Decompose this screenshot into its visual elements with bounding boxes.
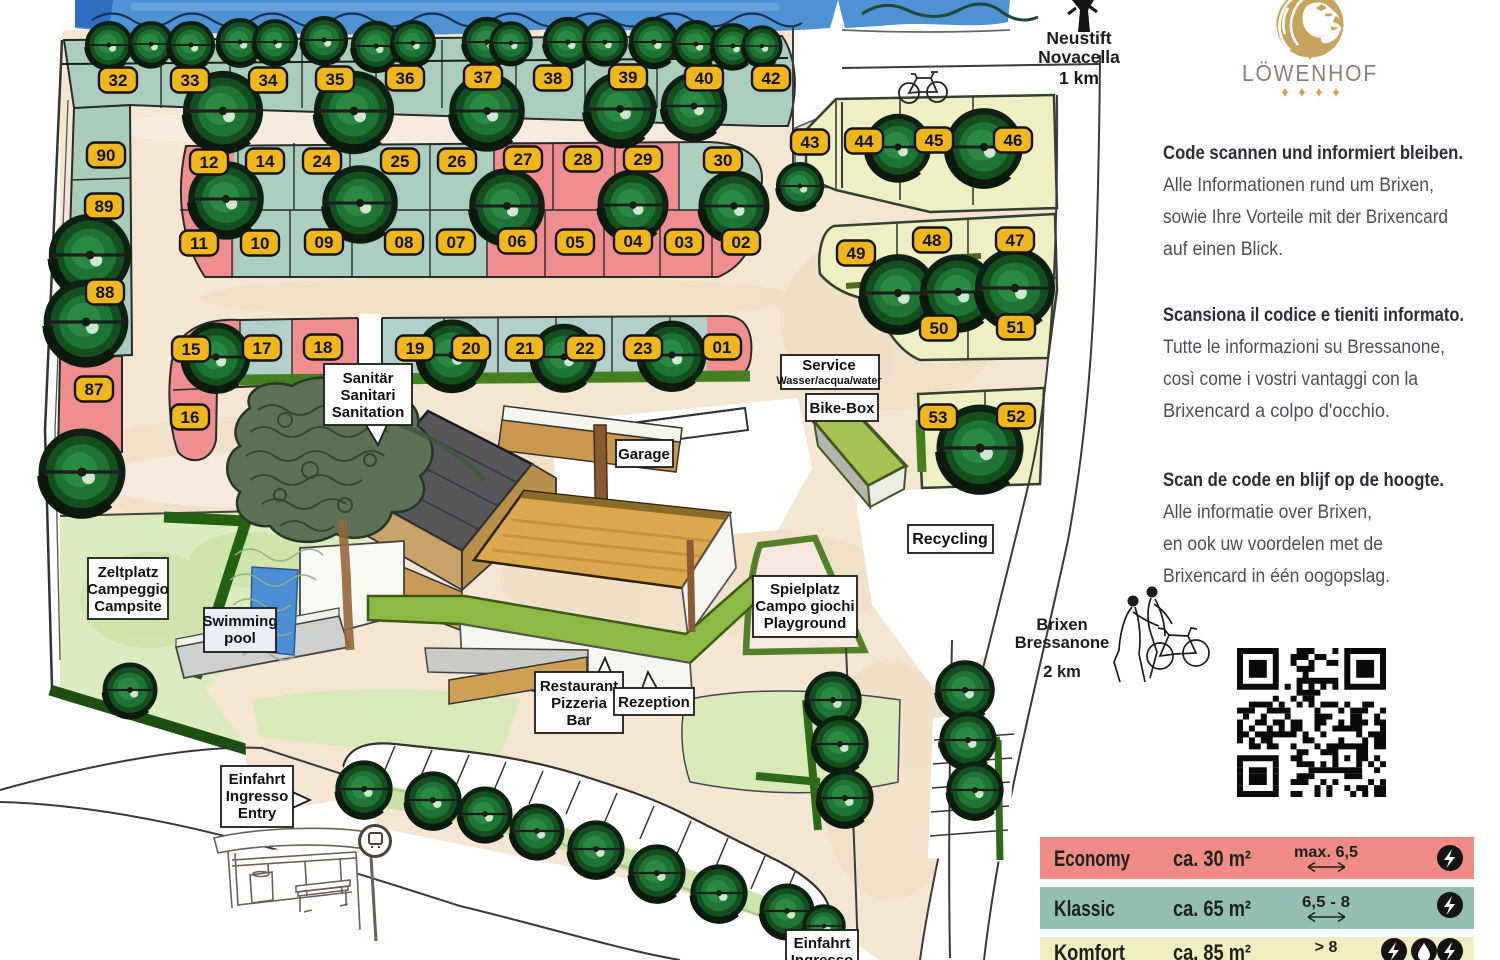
svg-text:21: 21 xyxy=(516,339,535,358)
svg-text:47: 47 xyxy=(1006,231,1025,250)
svg-text:53: 53 xyxy=(929,408,948,427)
svg-text:ca. 30 m²: ca. 30 m² xyxy=(1173,846,1251,871)
svg-text:49: 49 xyxy=(847,244,866,263)
svg-text:51: 51 xyxy=(1007,318,1026,337)
svg-text:46: 46 xyxy=(1004,131,1023,150)
svg-text:LÖWENHOF: LÖWENHOF xyxy=(1242,60,1378,86)
svg-text:87: 87 xyxy=(85,380,104,399)
svg-text:15: 15 xyxy=(182,340,201,359)
svg-text:01: 01 xyxy=(713,338,732,357)
svg-text:35: 35 xyxy=(326,70,345,89)
svg-text:SpielplatzCampo giochiPlaygrou: SpielplatzCampo giochiPlayground xyxy=(755,581,854,632)
svg-text:Komfort: Komfort xyxy=(1054,940,1126,960)
svg-text:18: 18 xyxy=(314,338,333,357)
svg-text:04: 04 xyxy=(624,232,643,251)
svg-text:22: 22 xyxy=(576,339,595,358)
svg-text:09: 09 xyxy=(315,233,334,252)
svg-text:11: 11 xyxy=(190,234,208,253)
svg-text:39: 39 xyxy=(619,68,638,87)
svg-text:34: 34 xyxy=(259,71,278,90)
svg-text:42: 42 xyxy=(762,69,781,88)
svg-text:07: 07 xyxy=(447,233,466,252)
svg-text:50: 50 xyxy=(930,319,949,338)
svg-text:40: 40 xyxy=(695,69,714,88)
svg-text:08: 08 xyxy=(395,233,414,252)
svg-text:16: 16 xyxy=(181,408,200,427)
svg-text:24: 24 xyxy=(313,152,332,171)
svg-text:03: 03 xyxy=(675,233,694,252)
svg-text:Economy: Economy xyxy=(1054,846,1131,871)
svg-text:SanitärSanitariSanitation: SanitärSanitariSanitation xyxy=(332,370,405,421)
svg-text:6,5 - 8: 6,5 - 8 xyxy=(1302,894,1350,911)
svg-text:14: 14 xyxy=(256,152,275,171)
svg-text:38: 38 xyxy=(544,69,563,88)
svg-text:30: 30 xyxy=(714,151,733,170)
svg-text:36: 36 xyxy=(396,69,415,88)
svg-text:Klassic: Klassic xyxy=(1054,896,1115,921)
svg-text:max. 6,5: max. 6,5 xyxy=(1294,844,1358,861)
svg-text:ZeltplatzCampeggioCampsite: ZeltplatzCampeggioCampsite xyxy=(87,564,169,615)
svg-text:Recycling: Recycling xyxy=(912,531,988,548)
svg-text:06: 06 xyxy=(508,232,527,251)
svg-text:27: 27 xyxy=(514,150,533,169)
svg-text:ca. 85 m²: ca. 85 m² xyxy=(1173,940,1251,960)
svg-text:05: 05 xyxy=(566,233,585,252)
svg-text:20: 20 xyxy=(462,339,481,358)
svg-text:Rezeption: Rezeption xyxy=(618,694,690,711)
svg-text:88: 88 xyxy=(96,283,115,302)
svg-text:29: 29 xyxy=(634,150,653,169)
svg-text:26: 26 xyxy=(448,152,467,171)
svg-text:Wasser/acqua/water: Wasser/acqua/water xyxy=(776,375,882,387)
svg-text:10: 10 xyxy=(251,234,270,253)
svg-text:52: 52 xyxy=(1007,407,1026,426)
svg-text:Bike-Box: Bike-Box xyxy=(809,400,875,417)
svg-text:44: 44 xyxy=(855,132,874,151)
svg-text:43: 43 xyxy=(801,133,820,152)
svg-text:33: 33 xyxy=(181,71,200,90)
svg-text:90: 90 xyxy=(97,146,116,165)
svg-text:19: 19 xyxy=(406,339,425,358)
svg-text:ca. 65 m²: ca. 65 m² xyxy=(1173,896,1251,921)
svg-text:EinfahrtIngresso: EinfahrtIngresso xyxy=(791,935,854,960)
svg-text:28: 28 xyxy=(574,150,593,169)
svg-text:37: 37 xyxy=(474,68,493,87)
svg-text:48: 48 xyxy=(923,231,942,250)
svg-text:Service: Service xyxy=(802,357,855,374)
svg-text:17: 17 xyxy=(253,339,272,358)
svg-text:> 8: > 8 xyxy=(1315,939,1338,956)
svg-text:12: 12 xyxy=(200,153,219,172)
svg-text:45: 45 xyxy=(925,131,944,150)
svg-text:Garage: Garage xyxy=(618,446,670,463)
svg-text:89: 89 xyxy=(95,197,114,216)
svg-text:23: 23 xyxy=(634,339,653,358)
svg-text:32: 32 xyxy=(109,71,128,90)
svg-text:02: 02 xyxy=(732,233,751,252)
svg-text:25: 25 xyxy=(391,152,410,171)
